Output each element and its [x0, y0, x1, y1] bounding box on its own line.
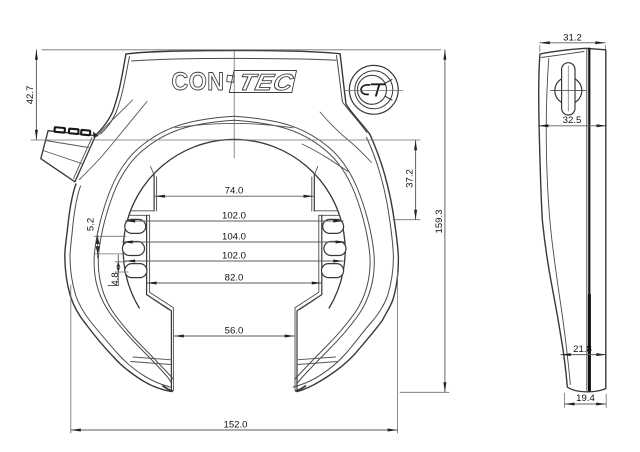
svg-text:104.0: 104.0: [222, 231, 246, 242]
svg-text:159.3: 159.3: [434, 209, 445, 233]
svg-text:31.2: 31.2: [563, 32, 582, 43]
svg-text:5.2: 5.2: [86, 218, 97, 231]
svg-text:32.5: 32.5: [563, 115, 582, 126]
svg-text:21.8: 21.8: [573, 344, 592, 355]
svg-text:74.0: 74.0: [225, 186, 244, 197]
svg-text:42.7: 42.7: [25, 86, 36, 105]
svg-text:TEC: TEC: [236, 69, 296, 95]
svg-text:102.0: 102.0: [222, 250, 246, 261]
svg-text:CON: CON: [172, 68, 225, 96]
svg-text:37.2: 37.2: [405, 169, 416, 188]
svg-text:82.0: 82.0: [225, 272, 244, 283]
svg-text:4.8: 4.8: [110, 272, 121, 285]
svg-text:102.0: 102.0: [222, 210, 246, 221]
svg-text:152.0: 152.0: [223, 419, 247, 430]
svg-text:56.0: 56.0: [225, 325, 244, 336]
svg-text:19.4: 19.4: [576, 393, 595, 404]
